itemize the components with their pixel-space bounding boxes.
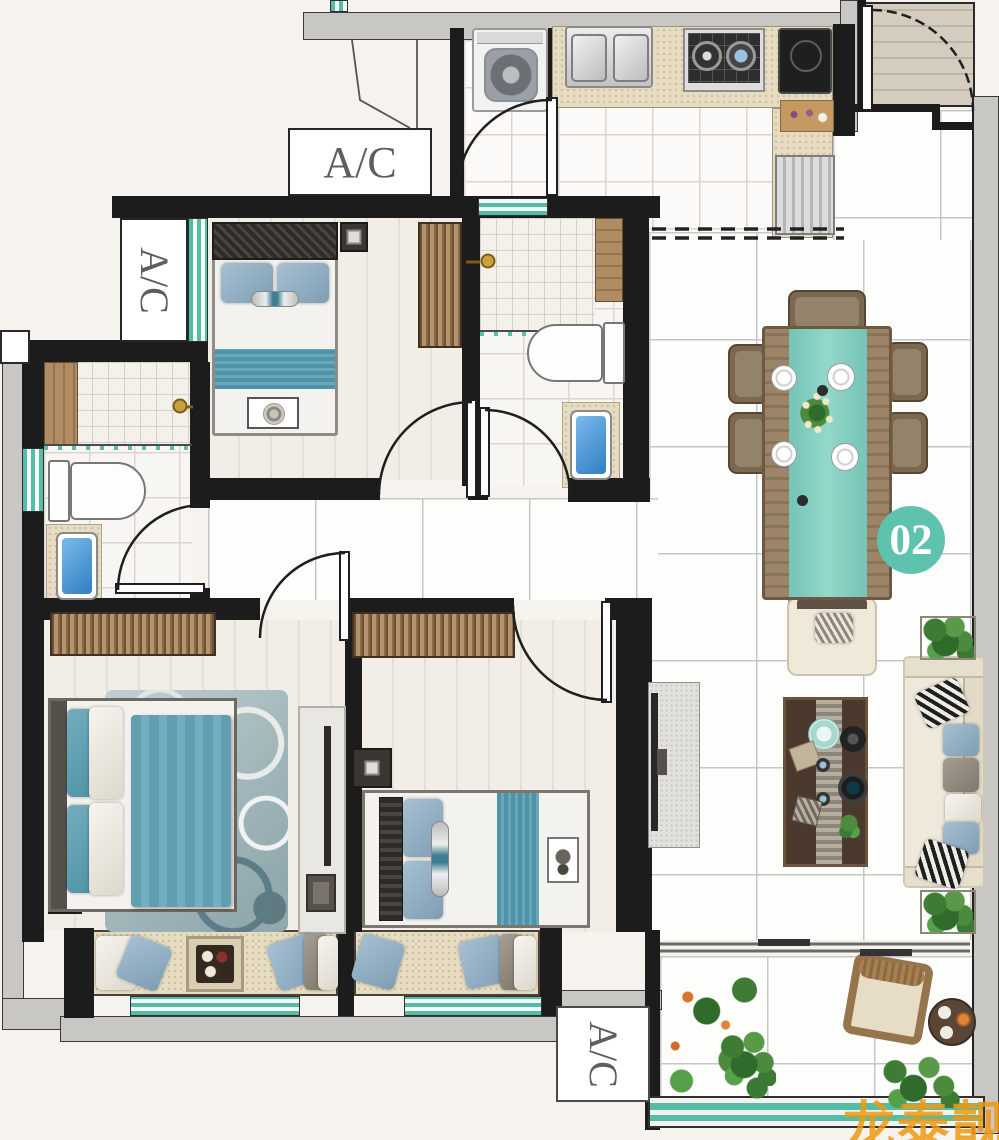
kettle: [840, 726, 866, 752]
bathroom1-shower-bench: [44, 362, 78, 446]
sofa-pillow-gray: [943, 758, 979, 792]
dining-chair-right-1: [886, 342, 928, 402]
cup: [940, 1026, 953, 1039]
table-centerpiece-flowers: [795, 387, 839, 439]
tray-inner: [196, 945, 234, 983]
window-bay-left: [130, 996, 300, 1016]
bedroom2-nightstand: [340, 222, 368, 252]
sofa-pillow-blue: [943, 724, 979, 756]
dresser-stool: [306, 874, 336, 912]
bay-tea-tray: [186, 936, 244, 992]
wall: [833, 24, 855, 136]
bed-runner-teal: [497, 793, 539, 925]
sofa-arm-top: [905, 658, 983, 678]
window-top-stub: [330, 0, 348, 12]
wall-bed3-east: [616, 598, 652, 932]
dining-table: [762, 326, 892, 600]
window-bathroom1-west: [22, 448, 44, 512]
wall: [540, 928, 562, 1016]
wall-master-west: [22, 620, 44, 942]
master-bed: [48, 698, 237, 912]
nightstand-knob: [365, 761, 380, 776]
washer-drum: [484, 48, 538, 102]
bedroom3-nightstand: [352, 748, 392, 788]
dresser-mirror: [324, 726, 331, 866]
bathroom2-sink: [570, 410, 612, 480]
wall: [858, 0, 866, 110]
washer-controls: [477, 32, 543, 44]
balcony-sliding-door-track: [660, 944, 970, 951]
ac-label-top: A/C: [323, 137, 396, 188]
bedroom3-wardrobe: [352, 612, 515, 658]
wall-bath2-east: [623, 196, 649, 502]
sofa-pillow-white: [945, 794, 981, 824]
bathroom1-sink: [56, 532, 98, 600]
dark-bowl: [838, 772, 868, 804]
unit-number: 02: [890, 516, 933, 565]
wall: [938, 122, 974, 130]
dining-chair-right-2: [886, 412, 928, 474]
teapot: [956, 1012, 971, 1027]
burner-left: [692, 41, 722, 71]
wall: [468, 478, 488, 500]
burner-right: [726, 41, 756, 71]
plant-ornament: [555, 847, 571, 875]
east-boundary-band: [972, 96, 999, 1134]
tea-cup: [816, 758, 830, 772]
plate: [771, 365, 797, 391]
plate: [771, 441, 797, 467]
gas-stove: [683, 28, 765, 92]
entry-wood-floor: [864, 2, 975, 107]
sink-basin: [576, 416, 606, 474]
balcony-plant-small: [718, 1030, 776, 1086]
prep-board: [780, 100, 834, 132]
wall-bath1-west-lower: [22, 510, 44, 602]
nightstand-knob: [347, 230, 362, 245]
bathroom2-vanity-cabinet: [595, 218, 623, 302]
west-boundary-band: [2, 346, 24, 1030]
refrigerator: [775, 155, 835, 235]
wall: [855, 104, 940, 112]
wall-bath1-east-upper: [190, 362, 210, 508]
sofa: [903, 656, 985, 888]
balcony-side-table: [928, 998, 976, 1046]
wall: [200, 478, 380, 500]
sliding-door-handle: [758, 939, 810, 946]
induction-ring: [790, 40, 822, 72]
wall-bath1-west-upper: [22, 362, 44, 450]
armchair-pillow: [815, 613, 853, 643]
ac-platform-top: A/C: [288, 128, 432, 196]
bed-headboard: [212, 222, 338, 260]
ac-platform-bottom: A/C: [556, 1006, 650, 1102]
cup: [817, 385, 828, 396]
bay-pillow-white: [318, 936, 338, 990]
bed-blanket-teal: [131, 715, 231, 907]
wall: [568, 478, 650, 502]
wall: [64, 928, 94, 1018]
wall-bath1-north: [22, 340, 208, 362]
sink-basin-right: [613, 34, 649, 82]
bed-pillow-white: [89, 707, 123, 799]
tv-stand-base: [657, 749, 667, 775]
bathroom2-shower-floor: [480, 218, 595, 332]
bedroom2-bed: [212, 222, 338, 436]
hallway-floor: [208, 498, 658, 600]
toilet-bowl: [527, 324, 603, 382]
wall-bed2-bath2-divider: [462, 196, 480, 486]
bed-headboard: [379, 797, 403, 921]
window-bathroom2-north: [478, 198, 548, 216]
armchair: [787, 597, 877, 676]
tray-fan-ornament: [263, 403, 285, 425]
chair-bolster: [857, 957, 925, 988]
rattan-armchair: [841, 952, 934, 1047]
toilet-tank: [48, 460, 70, 522]
bathroom1-shower-screen: [44, 444, 192, 450]
pipe-shaft: [0, 330, 30, 364]
living-plant-bottom: [920, 890, 976, 934]
coffee-table: [783, 697, 868, 867]
kitchen-sink: [565, 26, 653, 88]
bedroom2-wardrobe: [418, 222, 462, 348]
small-plant: [838, 812, 860, 840]
bed-foot-tray: [247, 397, 299, 429]
cup: [938, 1006, 951, 1019]
living-plant-top: [920, 616, 976, 660]
wall-top-bedrooms: [112, 196, 660, 218]
bathroom1-toilet: [48, 460, 146, 522]
ac-connector-line: [352, 40, 410, 128]
ac-label-left: A/C: [131, 247, 178, 314]
master-wardrobe: [50, 612, 216, 656]
bedroom3-bed: [362, 790, 590, 928]
bed-bolster: [431, 821, 449, 897]
induction-cooktop: [778, 28, 832, 94]
toilet-bowl: [70, 462, 146, 520]
bed-tray-plant: [547, 837, 579, 883]
wall: [450, 28, 464, 196]
window-bedroom2-west: [188, 218, 208, 342]
ac-platform-left: A/C: [120, 218, 188, 342]
floor-plan: A/C A/C A/C: [0, 0, 999, 1140]
stool-cushion: [313, 882, 329, 904]
bay-pillow-white: [514, 936, 536, 990]
cup: [797, 495, 808, 506]
washing-machine: [472, 28, 548, 112]
ac-label-bottom: A/C: [580, 1021, 627, 1088]
sink-basin-left: [571, 34, 607, 82]
window-bay-right: [404, 996, 542, 1016]
bed-runner-teal: [215, 349, 335, 389]
sink-basin: [62, 538, 92, 594]
master-dresser: [298, 706, 346, 934]
south-band-under-bays: [60, 1016, 562, 1042]
bathroom2-toilet: [527, 322, 625, 384]
stove-grate: [688, 33, 760, 83]
tv-cabinet: [648, 682, 700, 848]
toilet-tank: [603, 322, 625, 384]
watermark-text: 龙泰靓房: [843, 1084, 999, 1140]
plate: [831, 443, 859, 471]
bed-pillow-white: [89, 803, 123, 895]
unit-number-badge: 02: [877, 506, 945, 574]
bed-headboard: [51, 701, 67, 909]
bed-bolster: [251, 291, 299, 307]
